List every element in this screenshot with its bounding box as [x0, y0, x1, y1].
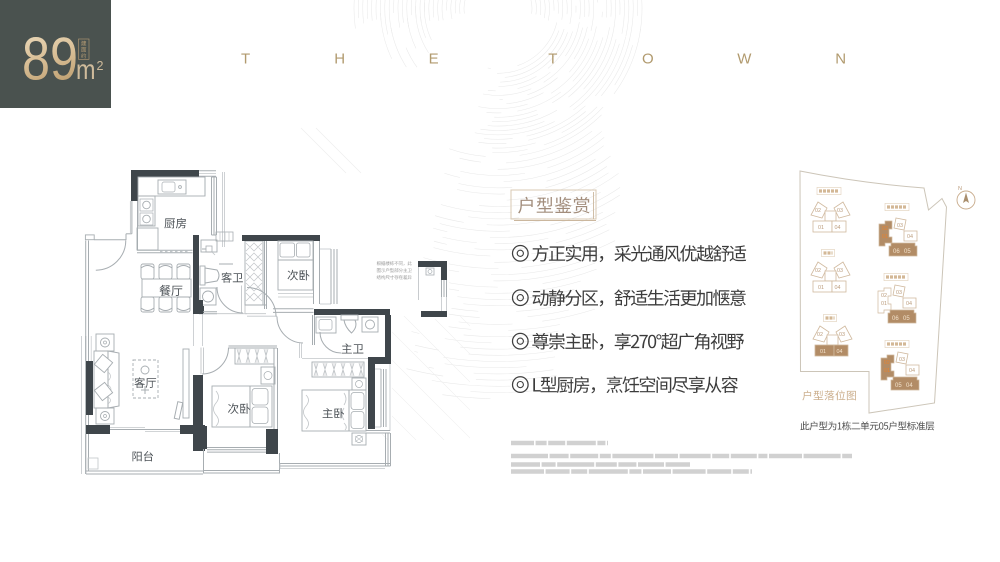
svg-text:04: 04: [837, 349, 843, 355]
svg-text:W: W: [737, 51, 752, 68]
svg-text:04: 04: [906, 301, 912, 307]
svg-text:H: H: [334, 51, 345, 68]
svg-text:02: 02: [817, 332, 823, 338]
svg-text:02: 02: [815, 208, 821, 214]
svg-text:05: 05: [895, 383, 902, 389]
svg-text:03: 03: [837, 208, 843, 214]
svg-text:03: 03: [897, 223, 903, 229]
svg-text:04: 04: [906, 383, 913, 389]
svg-text:T: T: [548, 51, 557, 68]
svg-text:03: 03: [899, 357, 905, 363]
svg-text:T: T: [241, 51, 250, 68]
svg-text:03: 03: [837, 268, 843, 274]
svg-text:02: 02: [882, 226, 888, 232]
svg-text:89: 89: [22, 25, 78, 92]
svg-text:E: E: [429, 51, 439, 68]
svg-text:01: 01: [884, 368, 890, 374]
svg-text:2: 2: [97, 59, 104, 73]
svg-text:04: 04: [909, 368, 915, 374]
svg-text:N: N: [958, 186, 962, 192]
svg-text:04: 04: [835, 285, 841, 291]
svg-text:N: N: [835, 51, 846, 68]
svg-text:06: 06: [892, 316, 899, 322]
svg-text:01: 01: [820, 349, 826, 355]
svg-text:06: 06: [893, 249, 900, 255]
svg-text:04: 04: [835, 225, 841, 231]
svg-text:02: 02: [815, 268, 821, 274]
svg-text:01: 01: [882, 234, 888, 240]
svg-text:02: 02: [884, 360, 890, 366]
svg-text:01: 01: [818, 225, 824, 231]
svg-text:O: O: [642, 51, 654, 68]
svg-text:05: 05: [904, 249, 911, 255]
svg-text:01: 01: [818, 285, 824, 291]
svg-text:03: 03: [839, 332, 845, 338]
svg-text:05: 05: [903, 316, 910, 322]
svg-text:01: 01: [881, 301, 887, 307]
svg-text:02: 02: [881, 293, 887, 299]
svg-text:03: 03: [896, 290, 902, 296]
svg-text:m: m: [76, 54, 96, 85]
svg-text:04: 04: [907, 234, 913, 240]
